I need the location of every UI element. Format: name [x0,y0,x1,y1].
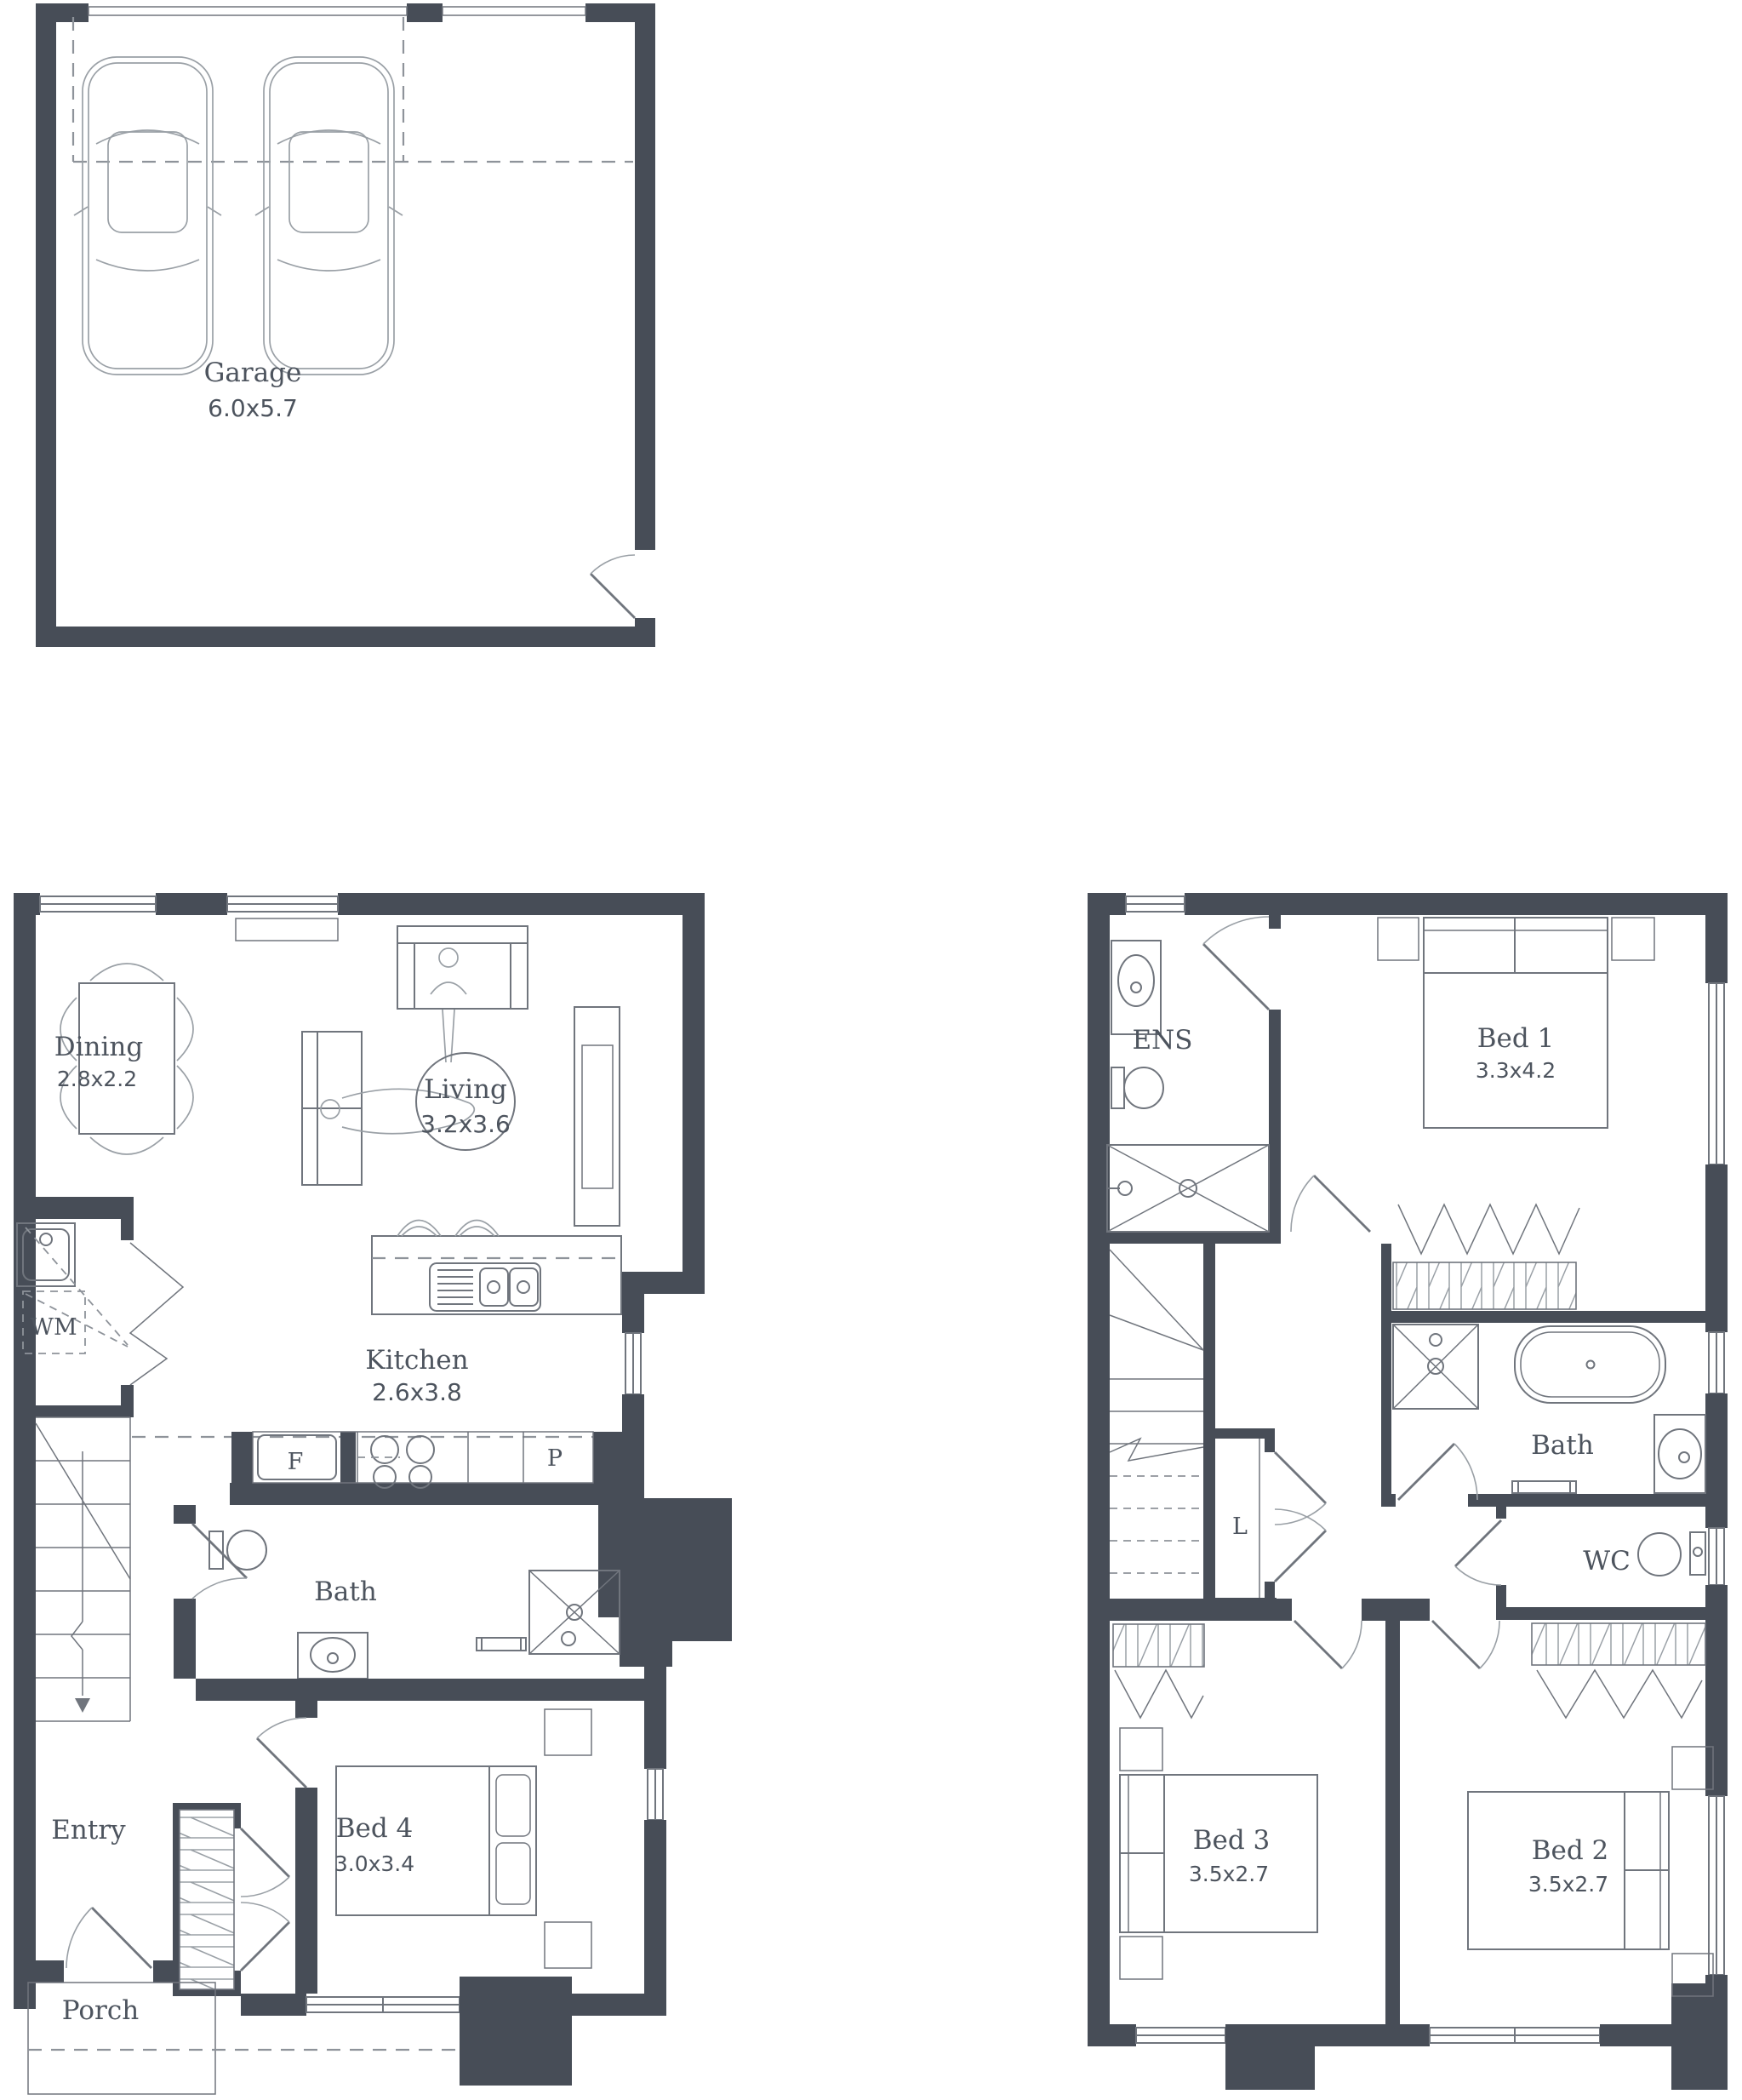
cooktop-icon [357,1432,468,1488]
bedside-table [1612,918,1654,960]
car-icon [255,57,403,375]
tv-unit [574,1007,620,1226]
kitchen-island [372,1221,621,1315]
door [192,1524,247,1599]
garage-plan: Garage 6.0x5.7 [36,3,655,647]
bed1-dims: 3.3x4.2 [1476,1058,1556,1083]
window [1430,2028,1600,2043]
window [227,896,338,912]
shower-icon [1107,1145,1269,1232]
bed3-label: Bed 3 [1193,1825,1271,1856]
wardrobe [1388,1204,1705,1323]
bedroom-3: Bed 3 3.5x2.7 [1113,1624,1317,1979]
floor-plan-page: Garage 6.0x5.7 [0,0,1742,2100]
window [1126,896,1185,912]
door [1203,917,1269,1010]
porch-label: Porch [62,1995,139,2026]
bathroom: Bath [174,1505,620,1679]
vanity-icon [1111,941,1161,1034]
window [1709,1796,1724,1975]
bifold-door [130,1243,183,1385]
bedroom-1: Bed 1 3.3x4.2 [1291,918,1705,1323]
window [1709,983,1724,1164]
wardrobe [1532,1623,1705,1718]
dining-label: Dining [54,1032,143,1062]
kitchen: F P [230,1432,644,1505]
person-icon [431,948,466,1062]
laundry: WM [14,1197,183,1417]
bedside-table [1120,1728,1162,1771]
window [1709,1528,1724,1585]
linen-closet: L [1206,1428,1326,1611]
ensuite: ENS [1088,915,1281,1244]
front-door [66,1908,151,1968]
bed-icon [1468,1792,1669,1949]
pantry-label: P [547,1445,563,1472]
bed1-label: Bed 1 [1477,1023,1555,1054]
shower-icon [1393,1325,1478,1409]
ground-floor-plan: Dining 2.8x2.2 [14,893,732,2094]
window [1136,2028,1225,2043]
stool-icon [397,1221,441,1237]
towel-rail-icon [1512,1481,1576,1493]
bedside-table [545,1922,591,1968]
wm-label: WM [30,1314,77,1341]
bedroom-2: Bed 2 3.5x2.7 [1468,1623,1713,1996]
living-dims: 3.2x3.6 [420,1110,511,1138]
bed4-label: Bed 4 [336,1813,414,1844]
bed3-dims: 3.5x2.7 [1189,1862,1269,1886]
vanity-icon [1654,1415,1705,1493]
toilet-icon [1638,1532,1705,1576]
ens-label: ENS [1133,1025,1193,1056]
bedside-table [1120,1937,1162,1979]
fridge-label: F [288,1449,304,1475]
door [241,1828,289,1971]
living-label: Living [424,1074,507,1105]
stair-arrow [75,1698,90,1713]
window [1709,1332,1724,1393]
stair-break-line [1110,1439,1203,1461]
window [40,896,156,912]
sink-icon [430,1263,540,1311]
bath-label: Bath [1531,1430,1594,1461]
bedside-table [545,1709,591,1755]
bed2-label: Bed 2 [1532,1835,1609,1866]
linen-label: L [1232,1513,1248,1540]
bedside-table [1378,918,1419,960]
door [1275,1452,1326,1582]
vanity-icon [298,1633,368,1679]
bath-label: Bath [314,1576,377,1607]
first-floor-plan: ENS Bed 1 3.3x4.2 [1088,893,1728,2090]
sofa [397,926,528,1009]
door [1455,1520,1501,1585]
entry-closet [173,1803,289,1996]
door [1398,1444,1477,1500]
entry-label: Entry [51,1815,126,1845]
entry: Entry [14,1815,173,1983]
sideboard [236,918,338,941]
stairs [36,1417,130,1721]
bed4-dims: 3.0x3.4 [334,1851,414,1876]
door [1432,1621,1499,1668]
stairs [1110,1244,1215,1611]
wardrobe [1113,1624,1204,1718]
garage-label: Garage [204,358,302,388]
bathtub-icon [1515,1326,1665,1403]
window [625,1333,641,1394]
window [306,1997,460,2012]
stool-icon [455,1221,499,1237]
chaise [302,1032,362,1185]
door [1291,1176,1370,1232]
garage-entry-door [591,555,635,618]
car-icon [74,57,221,375]
toilet-icon [1111,1067,1163,1108]
garage-dims: 6.0x5.7 [208,394,298,422]
wc-label: WC [1583,1546,1631,1576]
garage-door [73,7,633,162]
towel-rail-icon [477,1638,526,1651]
kitchen-dims: 2.6x3.8 [372,1378,462,1406]
kitchen-label: Kitchen [365,1345,468,1376]
wc: WC [1455,1507,1705,1620]
dining-dims: 2.8x2.2 [57,1067,137,1091]
floor-plan-canvas: Garage 6.0x5.7 [0,0,1742,2100]
door [1294,1621,1362,1668]
bed2-dims: 3.5x2.7 [1528,1872,1608,1897]
window [648,1769,663,1820]
door [257,1718,306,1788]
